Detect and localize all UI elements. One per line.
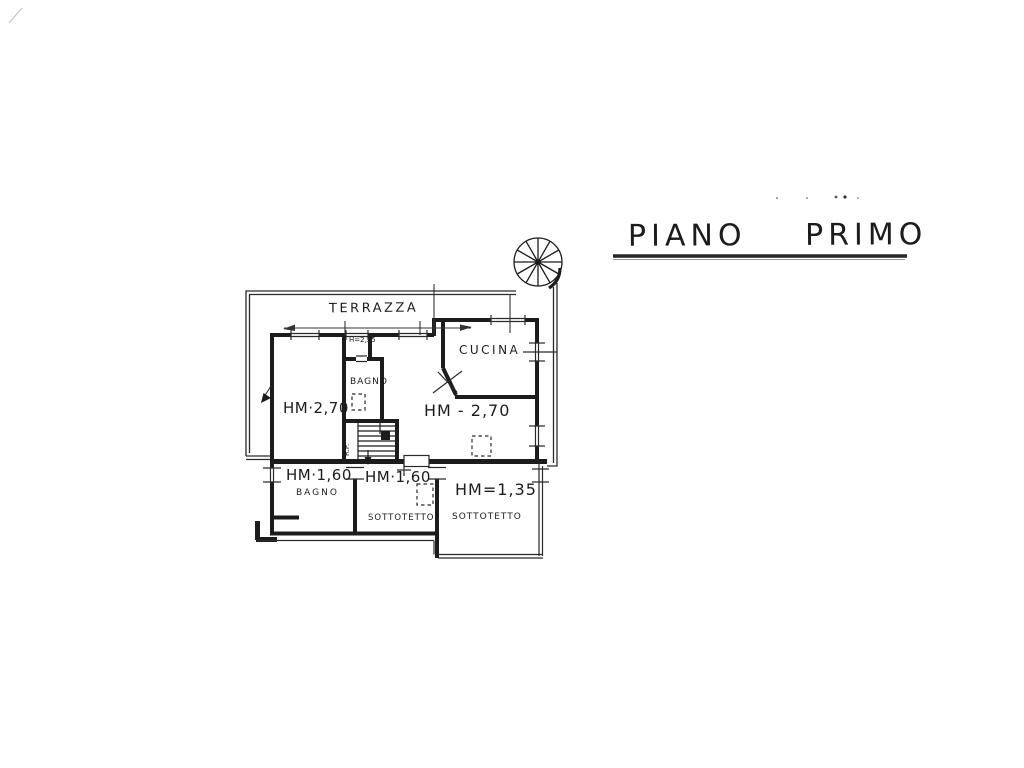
passage-height-label: H=2,25 (349, 337, 376, 344)
terrazza-label: TERRAZZA (329, 302, 418, 316)
sottotetto-right-height-label: HM=1,35 (455, 482, 537, 498)
cucina-label: CUCINA (459, 344, 520, 356)
title-underline (613, 256, 907, 260)
room-main-height-label: HM - 2,70 (424, 403, 510, 419)
bagno-upper-label: BAGNO (350, 378, 388, 387)
internal-staircase (358, 421, 397, 465)
bagno-lower-height-label: HM·1,60 (286, 468, 352, 483)
room-left-height-label: HM·2,70 (283, 401, 349, 416)
stair-note-label: R.P. (344, 444, 351, 456)
spiral-staircase (514, 238, 562, 288)
floor-plan-drawing (0, 0, 1024, 768)
sottotetto-middle-label: SOTTOTETTO (368, 514, 435, 523)
bagno-lower-label: BAGNO (296, 489, 339, 498)
page-title: PIANO PRIMO (628, 220, 927, 252)
scanned-floor-plan-page: PIANO PRIMO TERRAZZA H=2,25 BAGNO CUCINA… (0, 0, 1024, 768)
scan-specks (9, 8, 859, 199)
sottotetto-right-label: SOTTOTETTO (452, 513, 522, 522)
sottotetto-middle-height-label: HM·1,60 (365, 470, 431, 485)
